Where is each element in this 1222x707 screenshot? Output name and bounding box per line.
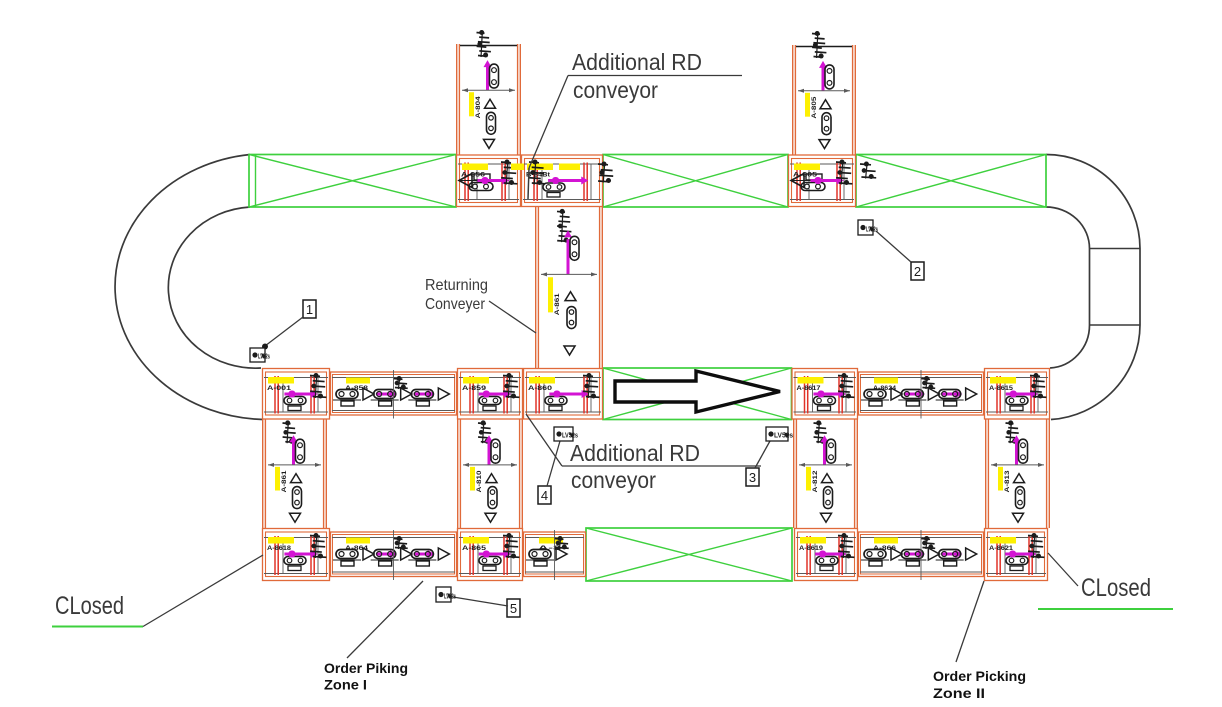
svg-text:1: 1: [306, 302, 313, 317]
svg-text:A-8617: A-8617: [797, 385, 821, 392]
svg-text:A-813: A-813: [1004, 470, 1011, 492]
svg-text:A-810: A-810: [476, 470, 483, 492]
svg-text:A-861: A-861: [281, 470, 288, 492]
svg-text:A-001: A-001: [267, 385, 292, 392]
svg-text:CLosed: CLosed: [55, 592, 124, 620]
svg-text:A-860: A-860: [528, 385, 553, 392]
svg-text:A-804: A-804: [475, 96, 482, 118]
svg-text:Conveyer: Conveyer: [425, 296, 486, 313]
svg-text:LV52s: LV52s: [774, 433, 793, 440]
svg-text:A-864: A-864: [345, 545, 368, 552]
svg-text:Returning: Returning: [425, 277, 488, 294]
svg-text:A-866: A-866: [873, 545, 896, 552]
svg-text:5: 5: [510, 601, 517, 616]
svg-text:A-8619: A-8619: [799, 545, 823, 552]
svg-text:CLosed: CLosed: [1081, 574, 1151, 602]
svg-text:conveyor: conveyor: [573, 77, 658, 103]
svg-text:A-865: A-865: [462, 545, 487, 552]
svg-text:conveyor: conveyor: [571, 467, 656, 493]
svg-text:Zone II: Zone II: [933, 685, 985, 701]
svg-text:A-8618: A-8618: [267, 545, 291, 552]
svg-text:A-812: A-812: [812, 470, 819, 492]
svg-text:4: 4: [541, 488, 548, 503]
svg-text:A-8621: A-8621: [989, 545, 1013, 552]
svg-text:A-8: A-8: [538, 545, 562, 552]
svg-text:A-8615: A-8615: [989, 385, 1013, 392]
svg-text:Additional RD: Additional RD: [570, 440, 700, 466]
svg-text:A-858: A-858: [345, 385, 368, 392]
svg-text:A-805: A-805: [811, 96, 818, 118]
svg-text:3: 3: [749, 470, 756, 485]
svg-text:2: 2: [914, 264, 921, 279]
svg-text:A-861: A-861: [554, 293, 561, 315]
svg-text:A-8624: A-8624: [873, 385, 896, 392]
svg-text:Additional RD: Additional RD: [572, 49, 702, 75]
svg-text:A-859: A-859: [462, 385, 487, 392]
svg-text:Zone I: Zone I: [324, 677, 367, 693]
svg-text:Order Picking: Order Picking: [933, 668, 1026, 684]
svg-text:Order Piking: Order Piking: [324, 660, 408, 676]
